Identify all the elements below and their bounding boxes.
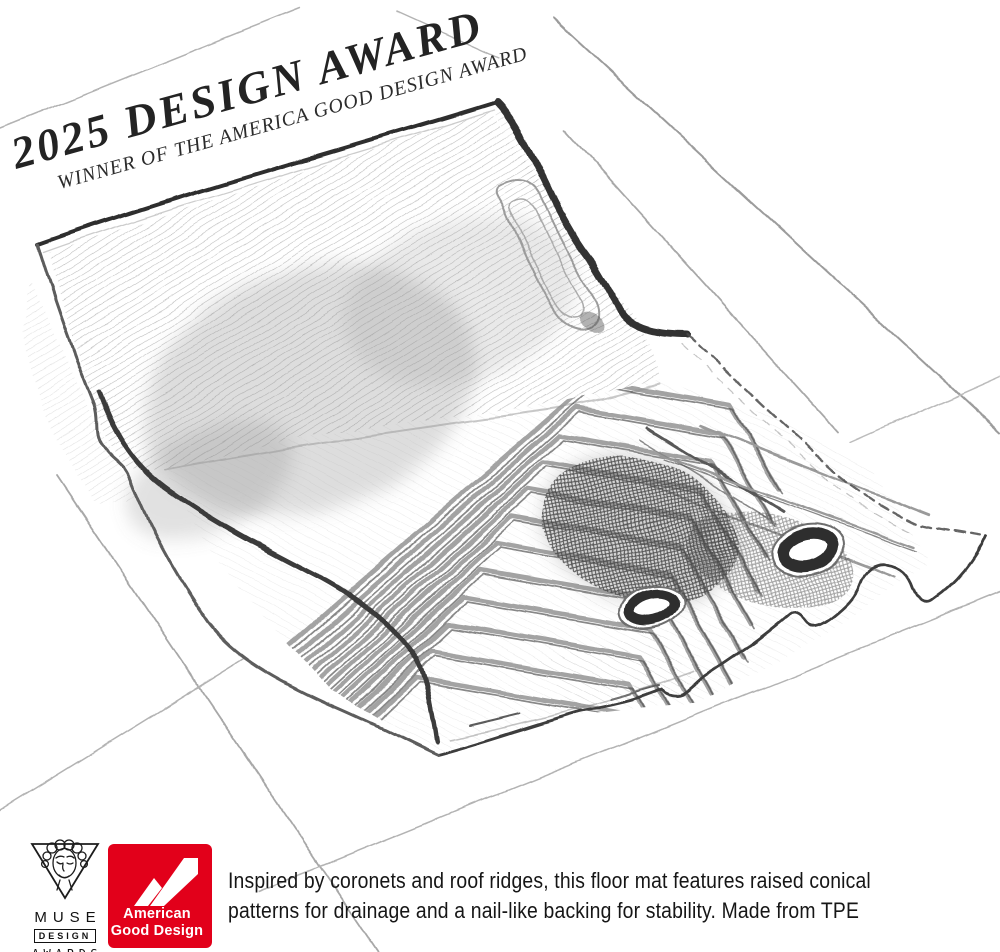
muse-logo-design: DESIGN xyxy=(34,929,97,943)
muse-logo-name: MUSE xyxy=(24,909,106,926)
product-image: 2025 DESIGN AWARD WINNER OF THE AMERICA … xyxy=(0,0,1000,952)
agd-logo-line2: Good Design xyxy=(108,923,206,940)
agd-a-icon xyxy=(114,850,206,912)
muse-design-awards-logo: MUSE DESIGN AWARDS xyxy=(24,836,106,952)
muse-face-icon xyxy=(27,836,103,902)
american-good-design-logo: American Good Design xyxy=(108,844,212,948)
caption-line-2: patterns for drainage and a nail-like ba… xyxy=(228,896,985,926)
product-caption: Inspired by coronets and roof ridges, th… xyxy=(228,866,985,926)
muse-logo-awards: AWARDS xyxy=(24,947,106,952)
caption-line-1: Inspired by coronets and roof ridges, th… xyxy=(228,866,985,896)
agd-logo-line1: American xyxy=(108,906,206,923)
